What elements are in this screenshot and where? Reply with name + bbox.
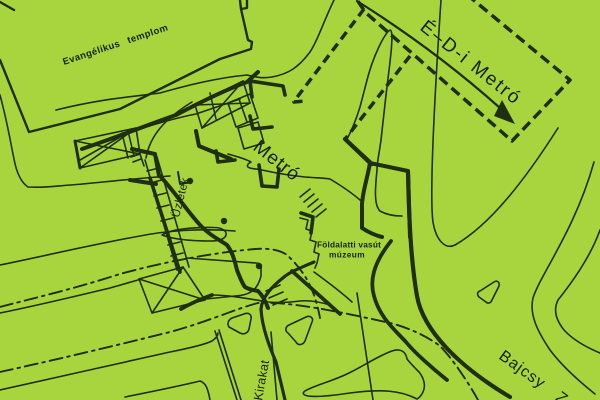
svg-text:Földalatti vasút: Földalatti vasút <box>317 240 381 250</box>
svg-text:múzeum: múzeum <box>329 250 365 260</box>
